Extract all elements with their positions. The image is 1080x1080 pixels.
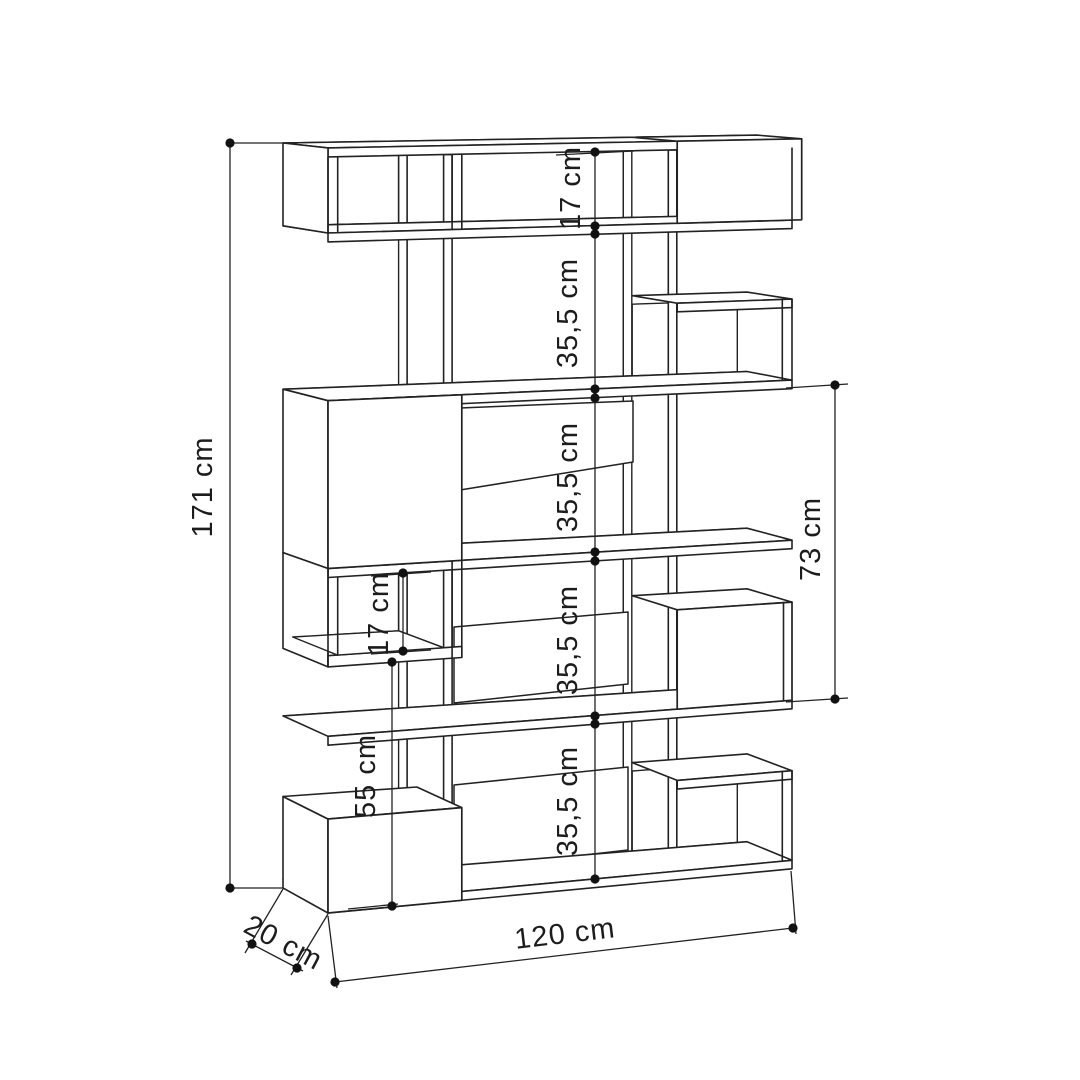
bookcase-dimension-drawing: 171 cm 17 cm 35,5 cm 35,5 cm 35,5 cm 35,… <box>0 0 1080 1080</box>
dimension-drawing-page: 171 cm 17 cm 35,5 cm 35,5 cm 35,5 cm 35,… <box>0 0 1080 1080</box>
bookshelf-linework <box>225 135 848 988</box>
dim-label-row2: 35,5 cm <box>552 258 584 368</box>
dim-label-total-depth: 20 cm <box>239 909 328 977</box>
dim-label-left-box: 17 cm <box>363 572 395 656</box>
dim-label-row5: 35,5 cm <box>552 746 584 856</box>
dim-label-row4: 35,5 cm <box>552 585 584 695</box>
dim-label-total-width: 120 cm <box>513 912 617 956</box>
dim-label-total-height: 171 cm <box>187 436 219 537</box>
dim-label-right-span: 73 cm <box>795 497 827 581</box>
dim-label-row1: 17 cm <box>555 146 587 230</box>
dim-label-clearance: 55 cm <box>350 734 382 818</box>
dim-label-row3: 35,5 cm <box>552 422 584 532</box>
